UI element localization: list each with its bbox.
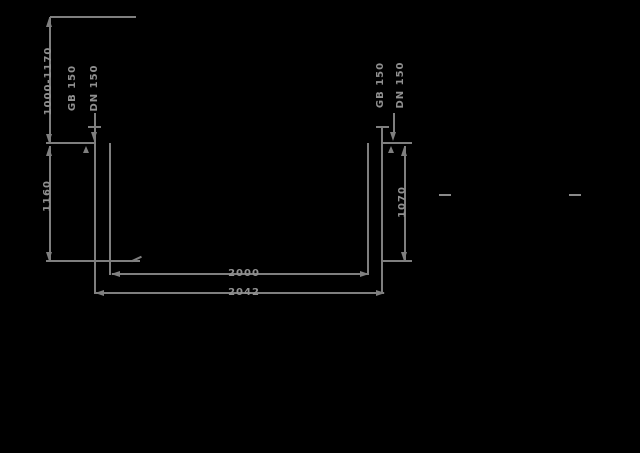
dim-label-inner-width: 2000 xyxy=(217,268,271,280)
right-leader-line xyxy=(393,113,395,133)
arrowhead-down-icon xyxy=(390,132,396,141)
arrowhead-up-small-icon xyxy=(83,146,89,153)
arrowhead-left-icon xyxy=(111,271,120,277)
right-wall-outer-line xyxy=(381,127,383,294)
arrowhead-down-icon xyxy=(91,132,97,141)
arrowhead-left-icon xyxy=(95,290,104,296)
label-right-pipe-line1: GB 150 xyxy=(375,58,387,112)
technical-drawing: 1000-1170 1160 GB 150 DN 150 GB 150 DN 1… xyxy=(0,0,640,453)
right-upper-extension-line xyxy=(383,142,412,144)
ground-line-left xyxy=(46,260,140,262)
dim-label-height-range: 1000-1170 xyxy=(43,36,55,126)
label-left-pipe-line1: GB 150 xyxy=(67,61,79,115)
arrowhead-up-icon xyxy=(46,18,52,27)
arrowhead-up-icon xyxy=(46,147,52,156)
left-leader-line xyxy=(94,113,96,133)
dim-label-right-height: 1070 xyxy=(397,178,409,226)
arrowhead-right-icon xyxy=(376,290,385,296)
top-reference-line xyxy=(50,16,136,18)
label-right-pipe-line2: DN 150 xyxy=(395,58,407,112)
arrowhead-up-small-icon xyxy=(388,146,394,153)
right-wall-inner-line xyxy=(367,143,369,275)
left-upper-extension-line xyxy=(46,142,96,144)
left-wall-outer-line xyxy=(94,127,96,294)
dim-label-left-height: 1160 xyxy=(42,172,54,220)
arrowhead-right-icon xyxy=(360,271,369,277)
right-lower-extension-line xyxy=(383,260,412,262)
dim-label-outer-width: 2042 xyxy=(217,287,271,299)
left-wall-inner-line xyxy=(109,143,111,275)
label-left-pipe-line2: DN 150 xyxy=(89,61,101,115)
tick-mark-left xyxy=(439,194,451,196)
arrowhead-up-icon xyxy=(401,147,407,156)
tick-mark-right xyxy=(569,194,581,196)
